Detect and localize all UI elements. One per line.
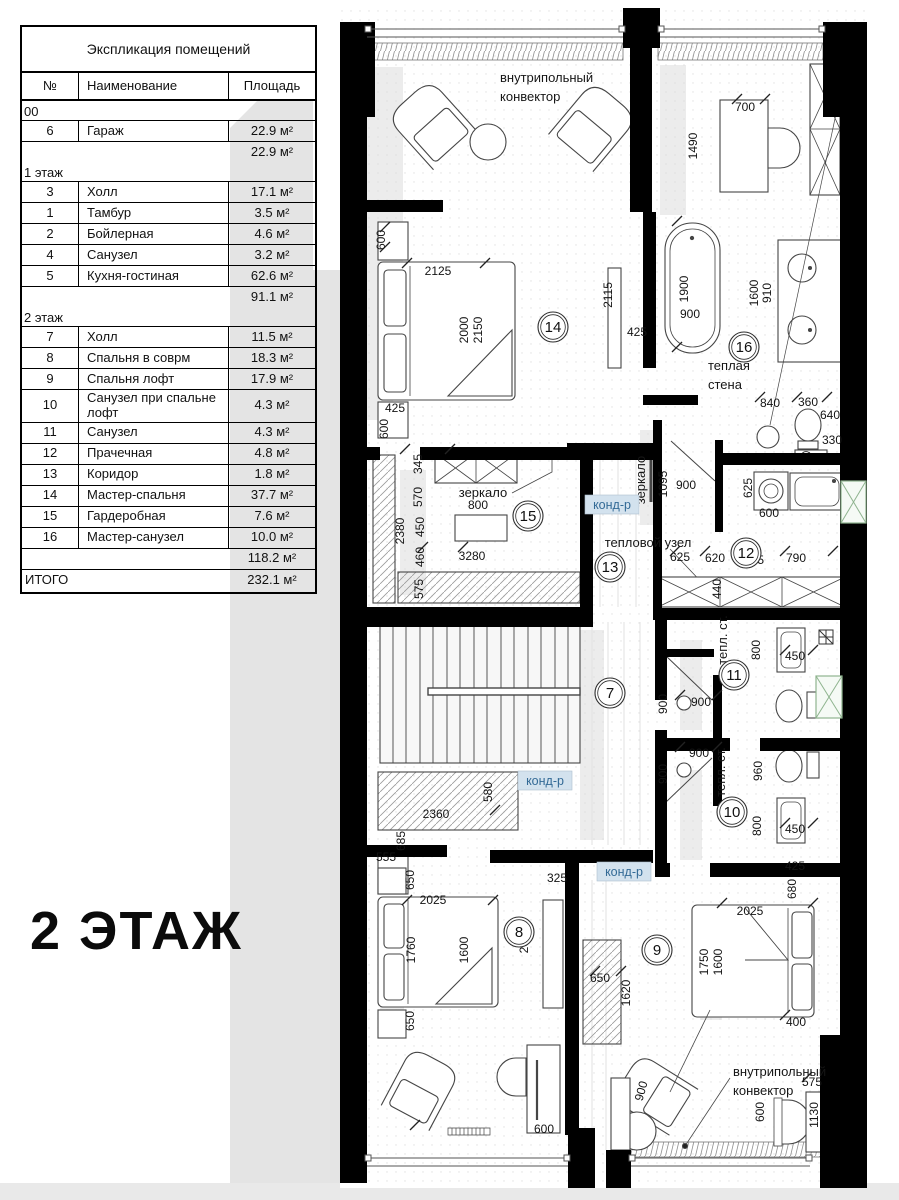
dimension-label: 640 <box>820 408 840 422</box>
tv-cabinet <box>543 900 563 1008</box>
total-value: 232.1 м² <box>229 570 315 592</box>
bed-room8 <box>378 897 498 1007</box>
dimension-label: 900 <box>691 695 711 709</box>
room-number-cell: 11 <box>22 423 78 443</box>
table-title: Экспликация помещений <box>22 27 315 73</box>
room-number-bubble: 14 <box>538 312 568 342</box>
island-dresser <box>455 515 507 541</box>
nightstand <box>378 868 406 894</box>
room-number-bubble: 7 <box>595 678 625 708</box>
dimension-label: 840 <box>760 396 780 410</box>
room-area-cell: 22.9 м² <box>228 121 315 141</box>
dimension-label: 1095 <box>656 470 670 497</box>
room-number-cell: 3 <box>22 182 78 202</box>
dimension-label: 900 <box>689 746 709 760</box>
table-row: 16Мастер-санузел10.0 м² <box>22 528 315 549</box>
table-row: 14Мастер-спальня37.7 м² <box>22 486 315 507</box>
room-number: 14 <box>545 319 562 336</box>
radiator-grille <box>448 1128 490 1135</box>
dimension-label: 450 <box>785 649 805 663</box>
dimension-label: 960 <box>751 761 765 781</box>
room-name-cell: Гараж <box>78 121 228 141</box>
room-name-cell: Санузел при спальне лофт <box>78 390 228 422</box>
room-number-cell: 12 <box>22 444 78 464</box>
ac-tag-label: конд-р <box>526 774 564 788</box>
toilet <box>776 750 802 782</box>
subtotal-spacer <box>78 142 229 162</box>
room-area-cell: 17.1 м² <box>228 182 315 202</box>
table-row: 2Бойлерная4.6 м² <box>22 224 315 245</box>
dimension-label: 900 <box>656 694 670 714</box>
room-name-cell: Спальня лофт <box>78 369 228 389</box>
dimension-label: 400 <box>786 1015 806 1029</box>
room-area-cell: 4.8 м² <box>228 444 315 464</box>
room-name-cell: Холл <box>78 327 228 347</box>
room-number: 16 <box>736 339 753 356</box>
washing-machine <box>754 472 788 510</box>
nightstand <box>378 1010 406 1038</box>
section-label: 1 этаж <box>22 162 315 182</box>
room-area-cell: 18.3 м² <box>228 348 315 368</box>
dimension-label: 325 <box>547 871 567 885</box>
room-number-bubble: 9 <box>642 935 672 965</box>
plan-label: тепл. ст. <box>713 747 728 797</box>
dimension-label: 2025 <box>420 893 447 907</box>
table-body: 006Гараж22.9 м²22.9 м²1 этаж3Холл17.1 м²… <box>22 101 315 569</box>
room-number-bubble: 13 <box>595 552 625 582</box>
room-area-cell: 62.6 м² <box>228 266 315 286</box>
vent-shaft <box>841 481 866 523</box>
ac-tag-label: конд-р <box>605 865 643 879</box>
subtotal-value: 118.2 м² <box>229 549 315 569</box>
room-area-cell: 7.6 м² <box>228 507 315 527</box>
table-row: 5Кухня-гостиная62.6 м² <box>22 266 315 287</box>
room-name-cell: Кухня-гостиная <box>78 266 228 286</box>
dimension-label: 650 <box>403 1011 417 1031</box>
toilet <box>795 409 821 449</box>
subtotal-spacer <box>22 142 78 162</box>
ac-unit-tag: конд-р <box>518 771 572 790</box>
dimension-label: 425 <box>627 325 647 339</box>
dimension-label: 1130 <box>807 1102 821 1128</box>
room-number: 13 <box>602 559 619 576</box>
dimension-label: 900 <box>676 478 696 492</box>
room-name-cell: Прачечная <box>78 444 228 464</box>
dimension-label: 800 <box>749 640 763 660</box>
table-row: 15Гардеробная7.6 м² <box>22 507 315 528</box>
room-number-bubble: 16 <box>729 332 759 362</box>
room-number-cell: 16 <box>22 528 78 548</box>
subtotal-value: 22.9 м² <box>229 142 315 162</box>
dimension-label: 2150 <box>471 316 485 343</box>
dimension-label: 600 <box>374 230 388 250</box>
room-number-bubble: 10 <box>717 797 747 827</box>
dimension-label: 555 <box>376 850 396 864</box>
dimension-label: 570 <box>411 487 425 507</box>
bed-master <box>378 262 515 400</box>
dimension-label: 620 <box>705 551 725 565</box>
room-number-cell: 15 <box>22 507 78 527</box>
stairs <box>380 622 580 763</box>
room-number-bubble: 15 <box>513 501 543 531</box>
plan-label: конвектор <box>500 89 560 104</box>
dimension-label: 1760 <box>404 936 418 963</box>
toilet <box>776 690 802 722</box>
room-name-cell: Спальня в соврм <box>78 348 228 368</box>
room-area-cell: 11.5 м² <box>228 327 315 347</box>
dimension-label: 800 <box>750 816 764 836</box>
dimension-label: 345 <box>411 454 425 474</box>
side-table <box>470 124 506 160</box>
room-area-cell: 37.7 м² <box>228 486 315 506</box>
room-number-bubble: 11 <box>719 660 749 690</box>
room-area-cell: 10.0 м² <box>228 528 315 548</box>
dimension-label: 1600 <box>747 279 761 306</box>
room-name-cell: Тамбур <box>78 203 228 223</box>
dimension-label: 360 <box>798 395 818 409</box>
room-area-cell: 17.9 м² <box>228 369 315 389</box>
section-subtotal-row: 22.9 м² <box>22 142 315 162</box>
table-row: 12Прачечная4.8 м² <box>22 444 315 465</box>
dimension-label: 450 <box>413 517 427 537</box>
table-row: 13Коридор1.8 м² <box>22 465 315 486</box>
dimension-label: 1600 <box>457 936 471 963</box>
room-area-cell: 4.6 м² <box>228 224 315 244</box>
table-row: 7Холл11.5 м² <box>22 327 315 348</box>
col-number-header: № <box>22 73 78 99</box>
dimension-label: 460 <box>413 547 427 567</box>
room-schedule-table: Экспликация помещений № Наименование Пло… <box>20 25 317 594</box>
section-subtotal-row: 118.2 м² <box>22 549 315 569</box>
subtotal-spacer <box>22 549 78 569</box>
dimension-label: 700 <box>735 100 755 114</box>
dimension-label: 600 <box>534 1122 554 1136</box>
section-label: 2 этаж <box>22 307 315 327</box>
plan-label: внутрипольный <box>733 1064 826 1079</box>
dimension-label: 2025 <box>737 904 764 918</box>
room-name-cell: Санузел <box>78 245 228 265</box>
vent-shaft <box>816 676 842 718</box>
room-number-cell: 10 <box>22 390 78 422</box>
laundry-sink <box>790 473 844 510</box>
drain-symbol <box>819 630 833 644</box>
room-number-cell: 4 <box>22 245 78 265</box>
dimension-label: 1750 <box>697 948 711 975</box>
room-number-cell: 2 <box>22 224 78 244</box>
desk <box>527 1045 560 1133</box>
table-row: 8Спальня в соврм18.3 м² <box>22 348 315 369</box>
room-area-cell: 4.3 м² <box>228 423 315 443</box>
room-area-cell: 1.8 м² <box>228 465 315 485</box>
room-name-cell: Гардеробная <box>78 507 228 527</box>
room-number: 8 <box>515 924 523 941</box>
room-number-cell: 9 <box>22 369 78 389</box>
room-number-cell: 8 <box>22 348 78 368</box>
dimension-label: 330 <box>822 433 842 447</box>
dimension-label: 650 <box>403 870 417 890</box>
dimension-label: 600 <box>759 506 779 520</box>
room-number-cell: 14 <box>22 486 78 506</box>
dimension-label: 900 <box>680 307 700 321</box>
bathtub <box>665 223 720 353</box>
room-number: 11 <box>726 667 742 684</box>
room-area-cell: 3.2 м² <box>228 245 315 265</box>
room-number: 10 <box>724 804 741 821</box>
table-row: 1Тамбур3.5 м² <box>22 203 315 224</box>
dimension-label: 580 <box>481 782 495 802</box>
room-number: 9 <box>653 942 661 959</box>
dimension-label: 790 <box>786 551 806 565</box>
room-number-cell: 13 <box>22 465 78 485</box>
table-row: 4Санузел3.2 м² <box>22 245 315 266</box>
closet-hatch <box>378 772 518 830</box>
room-number-cell: 7 <box>22 327 78 347</box>
dimension-label: 1490 <box>686 132 700 159</box>
total-label: ИТОГО <box>22 570 175 592</box>
table-row: 6Гараж22.9 м² <box>22 121 315 142</box>
room-name-cell: Коридор <box>78 465 228 485</box>
ac-unit-tag: конд-р <box>585 495 639 514</box>
room-number: 15 <box>520 508 537 525</box>
ac-tag-label: конд-р <box>593 498 631 512</box>
plan-label: тепловой узел <box>605 535 692 550</box>
table-row: 9Спальня лофт17.9 м² <box>22 369 315 390</box>
room-number: 7 <box>606 685 614 702</box>
wash-basin <box>757 426 779 448</box>
table-header-row: № Наименование Площадь <box>22 73 315 101</box>
col-name-header: Наименование <box>78 73 228 99</box>
plan-label: конвектор <box>733 1083 793 1098</box>
ac-unit-tag: конд-р <box>597 862 651 881</box>
subtotal-spacer <box>78 287 229 307</box>
section-subtotal-row: 91.1 м² <box>22 287 315 307</box>
room-name-cell: Бойлерная <box>78 224 228 244</box>
dimension-label: 575 <box>412 579 426 599</box>
dimension-label: 1620 <box>619 979 633 1006</box>
cabinet-x-row <box>658 577 845 607</box>
console <box>611 1078 630 1150</box>
dimension-label: 910 <box>760 283 774 303</box>
room-name-cell: Мастер-санузел <box>78 528 228 548</box>
dimension-label: 650 <box>590 971 610 985</box>
dimension-label: 2125 <box>425 264 452 278</box>
wardrobe-room9 <box>583 940 621 1044</box>
dimension-label: 425 <box>385 401 405 415</box>
dimension-label: 685 <box>394 831 408 851</box>
dimension-label: 600 <box>753 1102 767 1122</box>
dimension-label: 2000 <box>457 316 471 343</box>
table-total-row: ИТОГО 232.1 м² <box>22 569 315 592</box>
plan-label: внутрипольный <box>500 70 593 85</box>
dimension-label: 1600 <box>711 948 725 975</box>
plan-label: стена <box>708 377 743 392</box>
table-row: 11Санузел4.3 м² <box>22 423 315 444</box>
dimension-label: 440 <box>710 579 724 599</box>
room-number: 12 <box>738 545 755 562</box>
room-area-cell: 3.5 м² <box>228 203 315 223</box>
dimension-label: 625 <box>670 550 690 564</box>
room-name-cell: Холл <box>78 182 228 202</box>
subtotal-spacer <box>78 549 229 569</box>
room-number-bubble: 8 <box>504 917 534 947</box>
table-row: 3Холл17.1 м² <box>22 182 315 203</box>
dimension-label: 2115 <box>601 282 615 308</box>
room-number-cell: 5 <box>22 266 78 286</box>
dimension-label: 800 <box>468 498 488 512</box>
col-area-header: Площадь <box>228 73 315 99</box>
plan-label: зеркало <box>459 485 507 500</box>
dimension-label: 425 <box>785 859 805 873</box>
dimension-label: 680 <box>785 879 799 899</box>
floor-title: 2 ЭТАЖ <box>30 900 243 962</box>
room-number-cell: 6 <box>22 121 78 141</box>
dimension-label: 900 <box>656 764 670 784</box>
dimension-label: 600 <box>377 419 391 439</box>
room-number-bubble: 12 <box>731 538 761 568</box>
room-area-cell: 4.3 м² <box>228 390 315 422</box>
room-name-cell: Мастер-спальня <box>78 486 228 506</box>
dimension-label: 1900 <box>677 275 691 302</box>
plan-label: тепл. ст. <box>715 615 730 665</box>
floor-plan: 7001490600212520002150211542519009001600… <box>340 0 899 1200</box>
dimension-label: 625 <box>741 478 755 498</box>
dimension-label: 2360 <box>423 807 450 821</box>
room-number-cell: 1 <box>22 203 78 223</box>
subtotal-value: 91.1 м² <box>229 287 315 307</box>
section-label: 00 <box>22 101 315 121</box>
dimension-label: 2380 <box>393 517 407 544</box>
table-row: 10Санузел при спальне лофт4.3 м² <box>22 390 315 423</box>
dimension-label: 3280 <box>459 549 486 563</box>
room-name-cell: Санузел <box>78 423 228 443</box>
dimension-label: 450 <box>785 822 805 836</box>
subtotal-spacer <box>22 287 78 307</box>
